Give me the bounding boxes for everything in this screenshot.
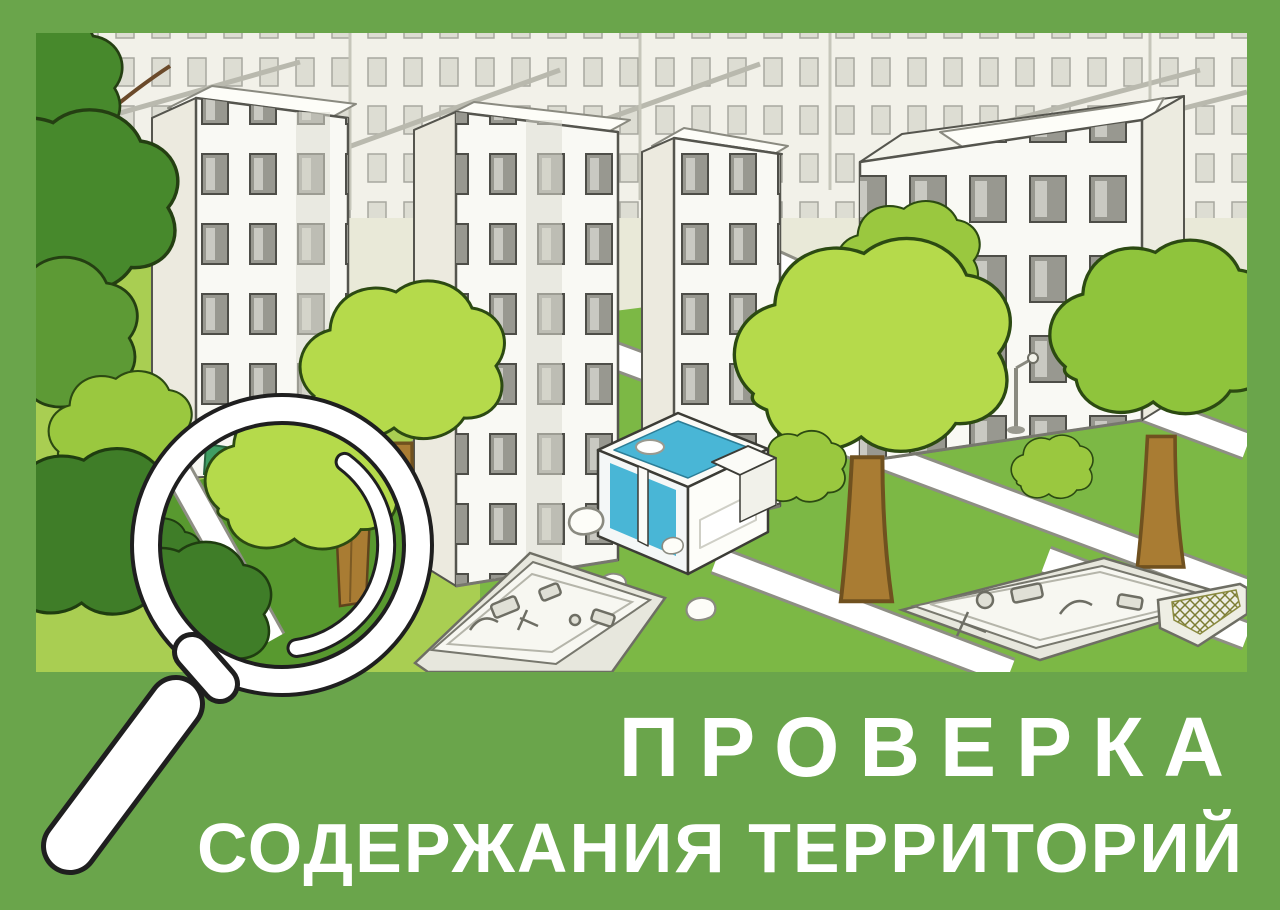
poster: ПРОВЕРКА СОДЕРЖАНИЯ ТЕРРИТОРИЙ — [0, 0, 1280, 910]
poster-title-line1: ПРОВЕРКА — [619, 700, 1244, 794]
poster-title-line2: СОДЕРЖАНИЯ ТЕРРИТОРИЙ — [197, 808, 1244, 887]
poster-illustration: ПРОВЕРКА СОДЕРЖАНИЯ ТЕРРИТОРИЙ — [0, 0, 1280, 910]
